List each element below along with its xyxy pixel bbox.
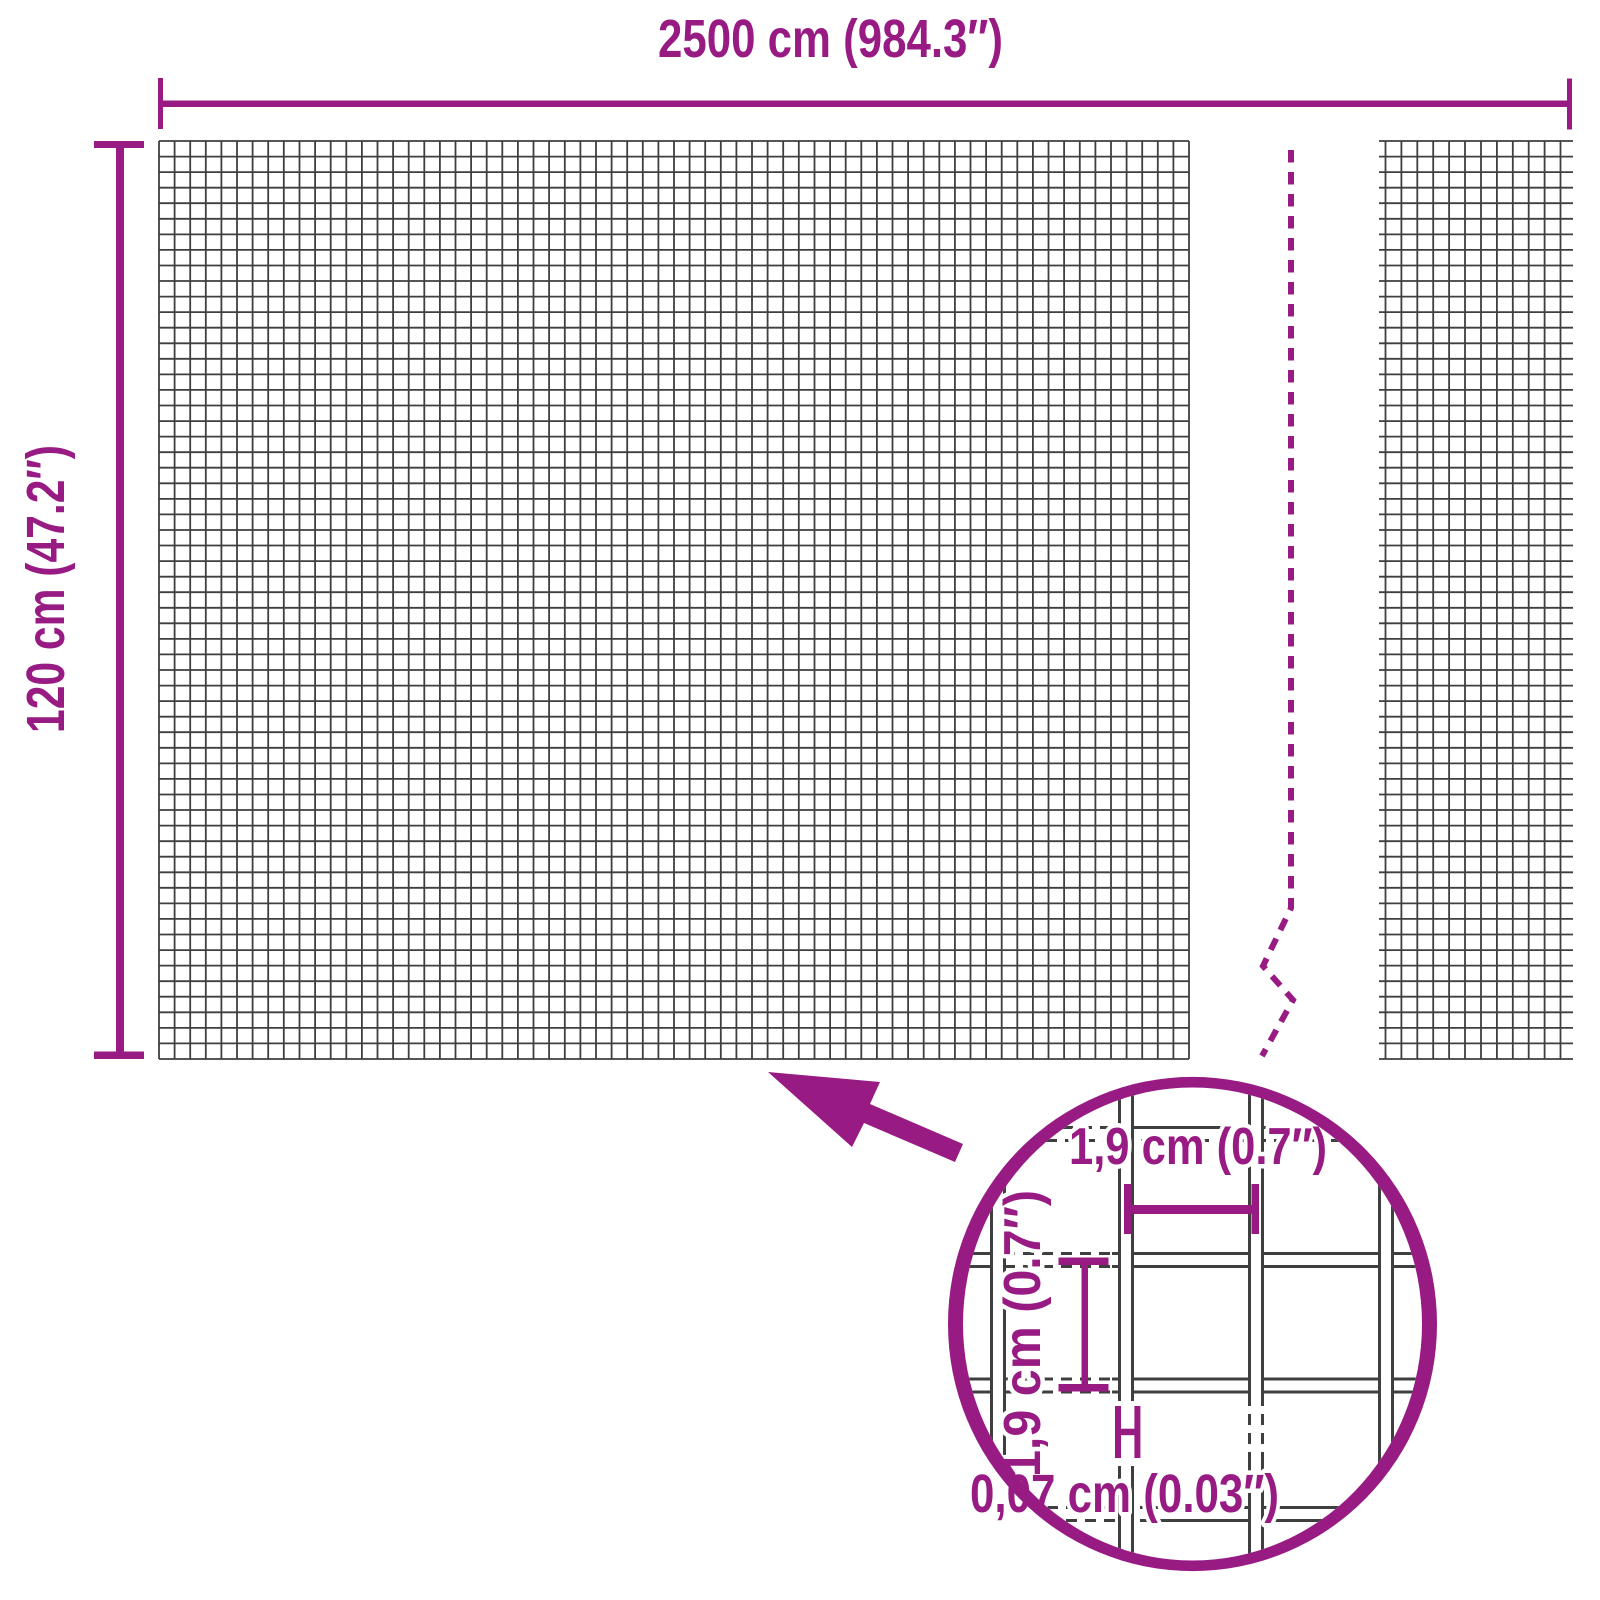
- svg-text:1,9 cm (0.7″): 1,9 cm (0.7″): [1069, 1118, 1327, 1176]
- svg-text:2500 cm (984.3″): 2500 cm (984.3″): [658, 9, 1003, 69]
- svg-text:1,9 cm (0.7″): 1,9 cm (0.7″): [994, 1190, 1052, 1477]
- svg-text:120 cm (47.2″): 120 cm (47.2″): [16, 445, 76, 733]
- svg-text:0,07 cm (0.03″): 0,07 cm (0.03″): [970, 1464, 1279, 1524]
